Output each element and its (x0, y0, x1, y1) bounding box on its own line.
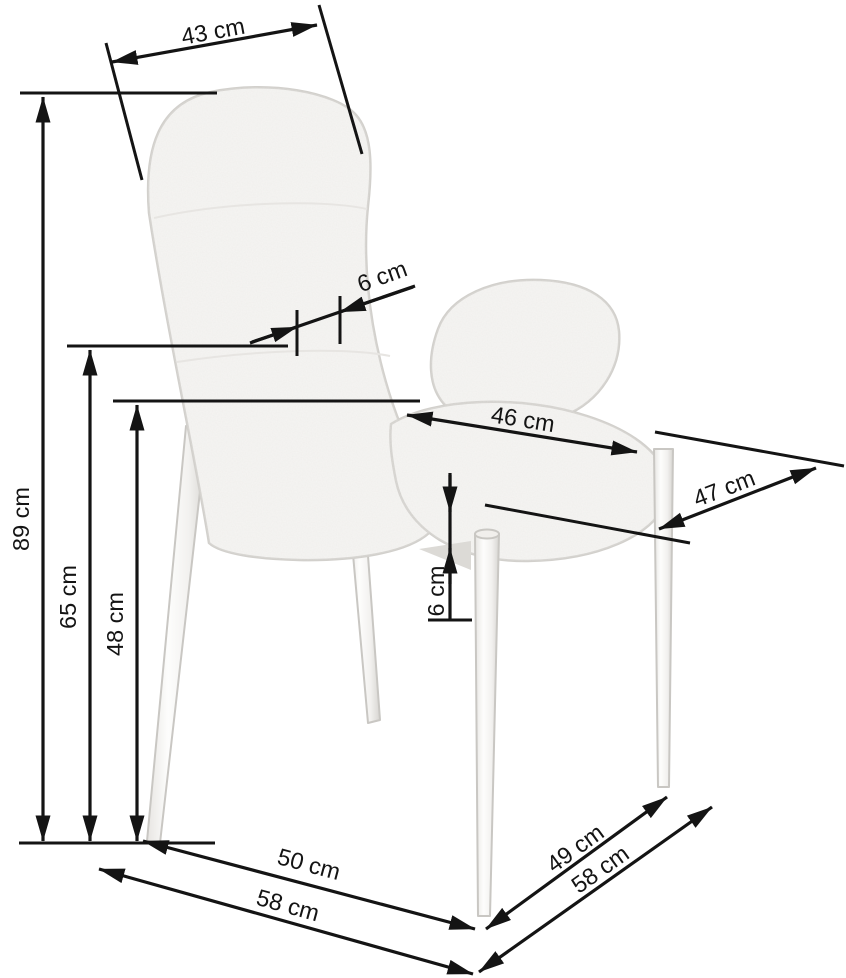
chair-leg-back-right (654, 449, 673, 787)
dim-label-seat-height: 48 cm (102, 592, 128, 656)
chair-leg-back-left (147, 426, 207, 843)
chair-leg-front-right (475, 534, 499, 916)
dim-footprint-width-inner: 49 cm (486, 797, 667, 929)
chair-fabric-texture (148, 87, 669, 561)
dim-label-overall-height: 89 cm (8, 487, 34, 551)
dim-footprint-depth-outer: 58 cm (99, 869, 473, 974)
chair-leg-front-right-cap (475, 530, 499, 539)
diagram-canvas: 89 cm 65 cm 48 cm 43 cm (0, 0, 846, 978)
ext-line (655, 432, 844, 466)
ext-line (106, 43, 142, 180)
chair-dimension-diagram: 89 cm 65 cm 48 cm 43 cm (0, 0, 846, 978)
dim-label-seat-thickness: 6 cm (423, 566, 449, 617)
dim-label-backrest-width: 43 cm (179, 13, 247, 50)
dim-label-backrest-bottom-height: 65 cm (55, 565, 81, 629)
dim-label-footprint-depth-outer: 58 cm (254, 884, 323, 926)
dim-line (99, 869, 473, 974)
chair-illustration (147, 87, 673, 916)
